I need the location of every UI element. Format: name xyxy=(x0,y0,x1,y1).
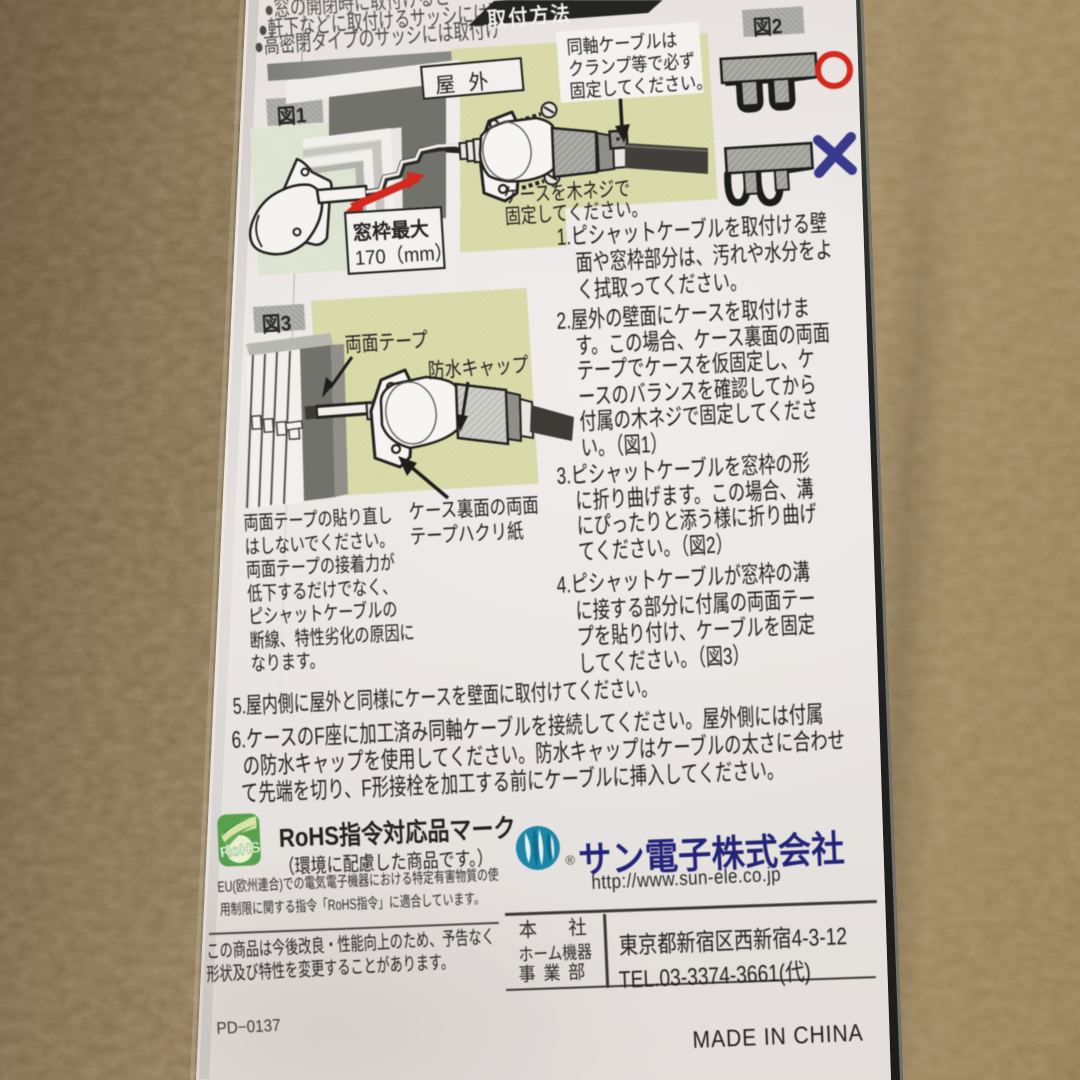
svg-text:®: ® xyxy=(565,852,576,867)
